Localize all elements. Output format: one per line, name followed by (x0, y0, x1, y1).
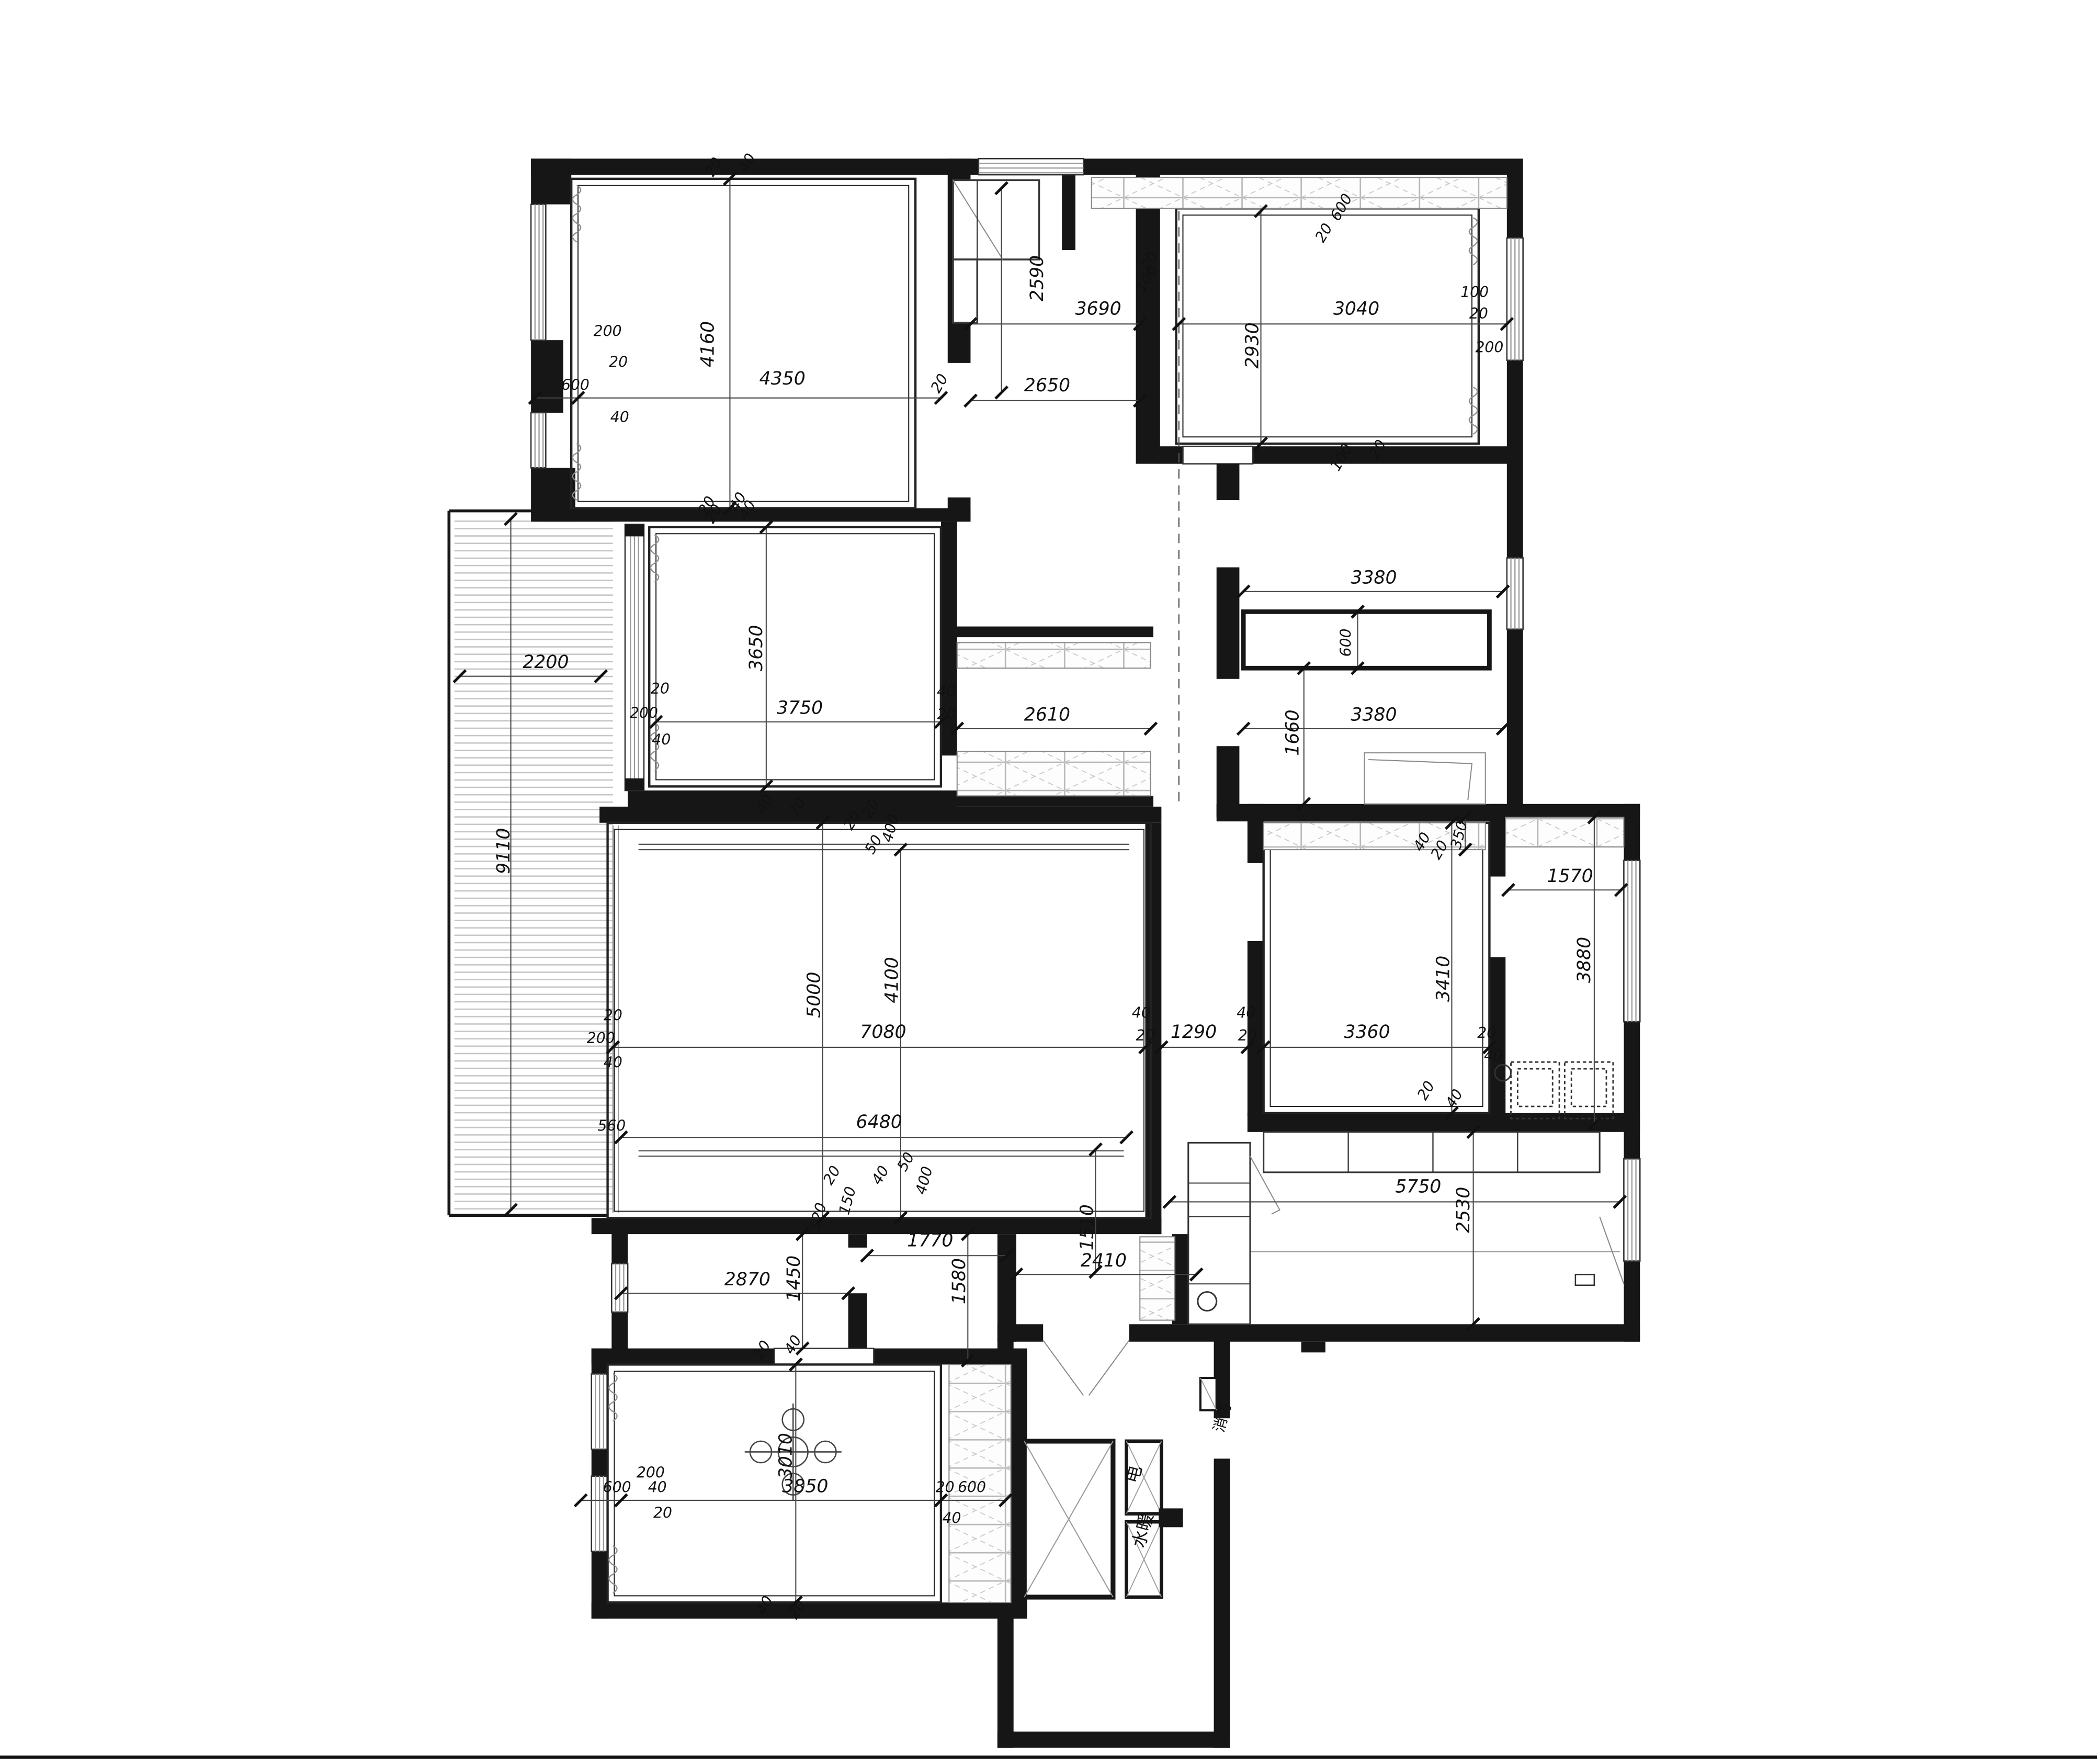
dim-label: 4350 (760, 368, 806, 389)
bedroom-border (1264, 823, 1490, 1113)
dim-label: 1580 (949, 1258, 970, 1304)
dim-label: 200 (630, 704, 658, 721)
dim-label: 3010 (776, 1433, 797, 1479)
window-bath-right (1624, 861, 1640, 1022)
dim-label: 20 (701, 154, 726, 179)
dim-label: 5750 (1395, 1176, 1441, 1197)
dim-label: 3850 (782, 1476, 828, 1497)
dim-label: 20 (604, 1007, 622, 1024)
dim-label: 9110 (493, 828, 514, 874)
dimension-labels: 4350416020020600402040204020259036902650… (493, 151, 1595, 1622)
windows (531, 159, 1640, 1551)
dim-label: 2590 (1027, 255, 1048, 301)
dim-label: 40 (1132, 1004, 1151, 1021)
hall-stub-wall (1062, 175, 1075, 250)
bed1-border (571, 179, 915, 508)
corridor-lower-cabinet (957, 752, 1151, 796)
dim-label: 2410 (1081, 1250, 1127, 1271)
study-right-wall (848, 1234, 867, 1248)
dim-label: 20 (1469, 305, 1488, 322)
mid-right-wall (1217, 567, 1240, 679)
kitchen-cabinets (1188, 1132, 1620, 1324)
corridor-bottom-wall (957, 796, 1153, 807)
dim-label: 1450 (784, 1256, 804, 1302)
dim-label: 3880 (1574, 937, 1595, 983)
dim-label: 2930 (1242, 322, 1263, 368)
dim-label: 600 (603, 1479, 631, 1496)
living-top-wall (599, 807, 1161, 823)
dim-label: 20 (936, 1479, 955, 1496)
hall-top-wardrobe (1092, 177, 1507, 208)
dim-label: 2650 (1024, 375, 1070, 396)
bed2-border (649, 527, 941, 786)
window-kitchen-right (1624, 1159, 1640, 1261)
door-stub (1301, 1342, 1325, 1353)
dim-label: 4160 (698, 321, 719, 367)
entry-door-swing (1043, 1340, 1129, 1395)
dim-label: 600 (958, 1479, 986, 1496)
dim-label: 40 (604, 1054, 622, 1071)
dim-label: 20 (820, 1163, 844, 1188)
window-bottomroom-1 (592, 1374, 608, 1449)
bath-top-wall (1507, 804, 1640, 818)
window-top (979, 159, 1083, 175)
dim-label: 40 (1442, 1086, 1467, 1111)
bed1-bottom-wall (546, 508, 970, 522)
dim-label: 20 (1312, 220, 1336, 245)
bath-left-wall (1489, 804, 1505, 877)
left-wall-block (531, 340, 563, 413)
lobby-bottom-wall (998, 1732, 1230, 1748)
drawing-sheet: 电 水暖 消防 (0, 0, 2097, 1764)
dim-label: 20 (1414, 1078, 1438, 1103)
core-shafts: 电 水暖 消防 (1024, 1378, 1234, 1597)
dim-label: 400 (912, 1164, 936, 1196)
dim-label: 20 (653, 1504, 672, 1521)
dim-label: 1770 (907, 1230, 953, 1251)
dim-label: 40 (648, 1479, 667, 1496)
living-border-inner (614, 830, 1144, 1212)
bed2-border-inner (656, 534, 934, 779)
dim-label: 20 (1477, 1024, 1496, 1042)
window-left-1 (531, 205, 546, 341)
bedroom-left-wall (1248, 804, 1264, 863)
dim-label: 200 (1475, 338, 1503, 356)
balcony-floor-hatch (455, 516, 613, 1213)
kitchen-bottom-wall (1129, 1324, 1640, 1341)
dim-label: 200 (587, 1030, 615, 1047)
window-right-top (1507, 238, 1523, 360)
bed1-right-wall (948, 497, 971, 522)
dim-label: 1570 (1547, 866, 1593, 887)
dim-label: 20 (927, 371, 952, 396)
dim-label: 1510 (1076, 1204, 1097, 1250)
dim-label: 560 (597, 1117, 626, 1134)
dim-label: 200 (594, 322, 622, 340)
bath-top-cabinet (1505, 817, 1624, 847)
dim-label: 40 (1484, 1047, 1503, 1065)
dim-label: 2610 (1024, 704, 1070, 725)
window-bed2-balcony (625, 524, 644, 790)
dim-label: 40 (610, 409, 629, 426)
dim-label: 50 (893, 1149, 918, 1174)
room-tr-border-inner (1183, 215, 1472, 437)
dim-label: 20 (651, 680, 670, 697)
kitchen-top-wall (1248, 1113, 1640, 1132)
corner-block (531, 159, 571, 204)
entry-bottom-wall (998, 1324, 1043, 1341)
study-left-wall (611, 1218, 628, 1263)
bottomroom-bottom-wall (592, 1602, 1027, 1619)
hall-right-wall (1136, 175, 1160, 464)
dim-label: 3380 (1351, 704, 1397, 725)
dim-label: 3650 (746, 625, 767, 671)
balcony (449, 511, 613, 1216)
dim-label: 20 (609, 354, 628, 371)
dim-label: 20 (937, 706, 956, 723)
dim-label: 3410 (1433, 956, 1454, 1002)
window-right-mid (1507, 558, 1523, 629)
dim-label: 20 (1136, 1027, 1155, 1044)
dim-label: 600 (561, 376, 590, 393)
dim-label: 2530 (1453, 1187, 1474, 1233)
dim-label: 40 (942, 1510, 961, 1527)
dim-label: 3360 (1344, 1022, 1390, 1043)
laundry-appliances (1495, 1062, 1613, 1118)
bath-left-wall (1489, 957, 1505, 1127)
kitchen-window-door (1575, 1217, 1624, 1285)
entry-shoe-cabinet (1140, 1237, 1175, 1320)
dim-label: 40 (1237, 1004, 1255, 1021)
dim-label: 6480 (856, 1112, 902, 1133)
niche-shelf-600 (1243, 612, 1489, 668)
dim-label: 20 (1238, 1027, 1257, 1044)
living-bottom-wall (592, 1218, 1162, 1234)
door-opening (1183, 446, 1253, 463)
dim-label: 3690 (1075, 298, 1121, 319)
lobby-right-wall (1214, 1458, 1230, 1748)
dim-label: 5000 (804, 972, 825, 1018)
corridor-top-wall (957, 627, 1153, 638)
bed-symbol (1364, 753, 1485, 804)
dim-label: 3040 (1333, 298, 1379, 319)
elevator-shaft (1024, 1441, 1113, 1597)
mid-right-wall (1217, 464, 1240, 500)
dim-label: 7080 (860, 1022, 906, 1043)
dim-label: 3380 (1351, 567, 1397, 588)
corridor-upper-cabinet (957, 642, 1151, 668)
dim-label: 1660 (1282, 709, 1303, 755)
fire-hydrant-box (1200, 1378, 1217, 1410)
window-left-2 (531, 413, 546, 468)
living-border (608, 823, 1151, 1218)
dim-label: 40 (937, 683, 956, 700)
hall-closet (953, 180, 1039, 322)
shaft-door-stub (1159, 1508, 1183, 1527)
dim-label: 2200 (523, 652, 569, 673)
dim-label: 3750 (777, 698, 823, 719)
dim-label: 40 (868, 1163, 892, 1188)
floorplan-svg: 电 水暖 消防 (0, 0, 2097, 1764)
bed1-border-inner (578, 186, 909, 502)
stool-symbol (1575, 1274, 1594, 1285)
window-study-left (611, 1264, 628, 1313)
dim-label: 40 (652, 731, 671, 749)
dim-label: 600 (1337, 628, 1355, 657)
dim-label: 1290 (1171, 1022, 1217, 1043)
dim-label: 4100 (882, 957, 903, 1003)
top-wall-right (1083, 159, 1523, 175)
kitchen-tall-cabinet (1188, 1143, 1250, 1324)
dim-label: 100 (1460, 284, 1489, 301)
dim-label: 2870 (724, 1269, 770, 1290)
